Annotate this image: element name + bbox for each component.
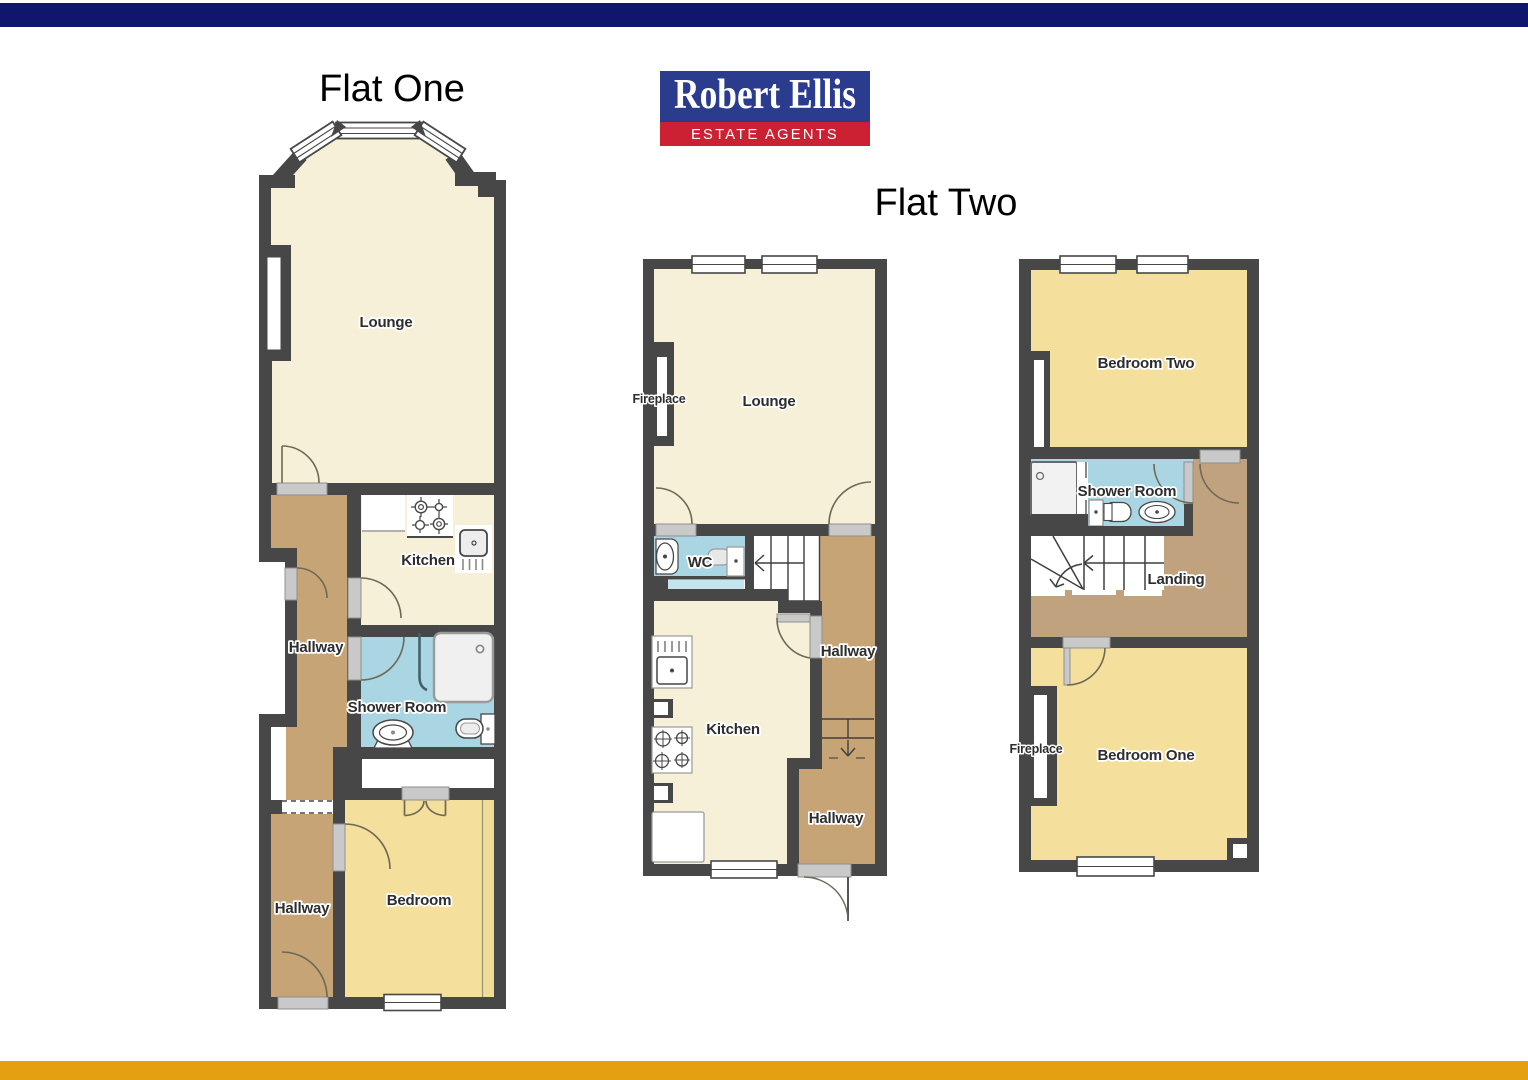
svg-text:Kitchen: Kitchen <box>706 721 760 738</box>
svg-text:Shower Room: Shower Room <box>348 699 447 716</box>
svg-text:Lounge: Lounge <box>743 393 796 410</box>
svg-text:Fireplace: Fireplace <box>632 392 685 406</box>
svg-text:Bedroom One: Bedroom One <box>1098 747 1195 764</box>
svg-text:Hallway: Hallway <box>275 900 330 917</box>
svg-text:Landing: Landing <box>1148 571 1205 588</box>
svg-text:Shower Room: Shower Room <box>1078 483 1177 500</box>
svg-text:Fireplace: Fireplace <box>1009 742 1062 756</box>
svg-text:Flat One: Flat One <box>319 68 465 110</box>
svg-text:Kitchen: Kitchen <box>401 552 455 569</box>
svg-text:Hallway: Hallway <box>809 810 864 827</box>
svg-text:WC: WC <box>688 554 713 571</box>
svg-text:Bedroom Two: Bedroom Two <box>1098 355 1195 372</box>
svg-text:Robert Ellis: Robert Ellis <box>674 72 856 118</box>
svg-text:Bedroom: Bedroom <box>387 892 451 909</box>
svg-text:ESTATE AGENTS: ESTATE AGENTS <box>691 127 839 143</box>
svg-text:Flat Two: Flat Two <box>875 182 1018 224</box>
svg-text:Lounge: Lounge <box>360 314 413 331</box>
svg-text:Hallway: Hallway <box>289 639 344 656</box>
svg-text:Hallway: Hallway <box>821 643 876 660</box>
